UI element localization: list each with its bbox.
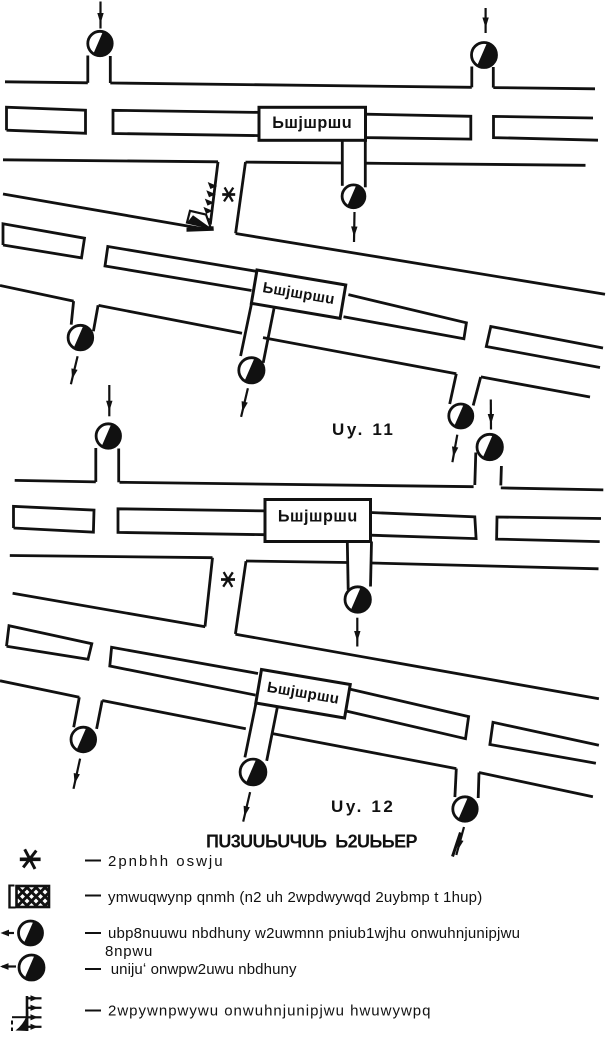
svg-text:2pnbhh oswju: 2pnbhh oswju	[108, 853, 225, 870]
svg-text:ubp8nuuwu nbdhuny w2uwmnn pniu: ubp8nuuwu nbdhuny w2uwmnn pniub1wjhu onw…	[108, 925, 520, 942]
svg-text:Ьшjшpшu: Ьшjшpшu	[272, 114, 352, 132]
svg-text:ПU3UUЬUЧUЬ Ь2UЬЬEP: ПU3UUЬUЧUЬ Ь2UЬЬEP	[206, 832, 417, 852]
svg-text:Uy. 11: Uy. 11	[332, 420, 396, 439]
svg-text:ymwuqwynp qnmh (n2 uh 2wpdwywq: ymwuqwynp qnmh (n2 uh 2wpdwywqd 2uybmp t…	[108, 889, 482, 906]
svg-text:2wpywnpwywu onwuhnjunipjwu hwu: 2wpywnpwywu onwuhnjunipjwu hwuwywpq	[108, 1003, 432, 1020]
svg-text:Uy. 12: Uy. 12	[331, 797, 395, 816]
svg-text:Ьшjшpшu: Ьшjшpшu	[278, 507, 358, 525]
svg-text:unijuʻ onwpw2uwu nbdhuny: unijuʻ onwpw2uwu nbdhuny	[111, 961, 297, 978]
svg-text:8npwu: 8npwu	[105, 943, 153, 960]
